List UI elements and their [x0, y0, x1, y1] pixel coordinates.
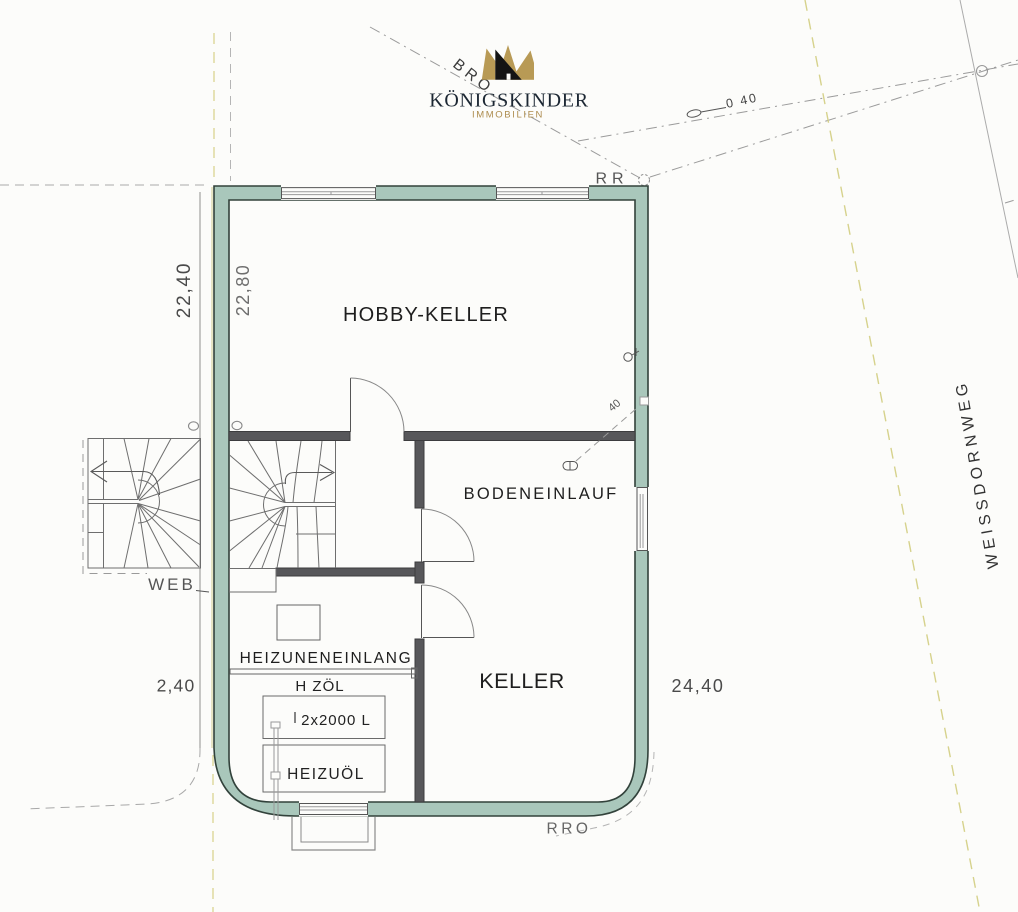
svg-text:BODENEINLAUF: BODENEINLAUF: [464, 485, 619, 503]
svg-text:H ZÖL: H ZÖL: [295, 677, 344, 695]
svg-text:22,80: 22,80: [233, 264, 253, 317]
svg-text:HEIZUNENEINLANG: HEIZUNENEINLANG: [240, 650, 413, 667]
svg-text:HEIZUÖL: HEIZUÖL: [287, 765, 365, 783]
svg-text:RRO: RRO: [547, 821, 592, 838]
svg-text:22,40: 22,40: [174, 262, 195, 319]
svg-text:KÖNIGSKINDER: KÖNIGSKINDER: [429, 89, 589, 112]
svg-text:2x2000 L: 2x2000 L: [301, 712, 371, 729]
svg-text:WEB: WEB: [148, 575, 196, 594]
svg-text:RR: RR: [595, 171, 628, 188]
svg-text:24,40: 24,40: [671, 676, 724, 696]
svg-text:KELLER: KELLER: [479, 669, 564, 693]
svg-text:IMMOBILIEN: IMMOBILIEN: [472, 110, 544, 121]
svg-text:2,40: 2,40: [157, 676, 196, 696]
svg-text:HOBBY-KELLER: HOBBY-KELLER: [343, 304, 509, 326]
